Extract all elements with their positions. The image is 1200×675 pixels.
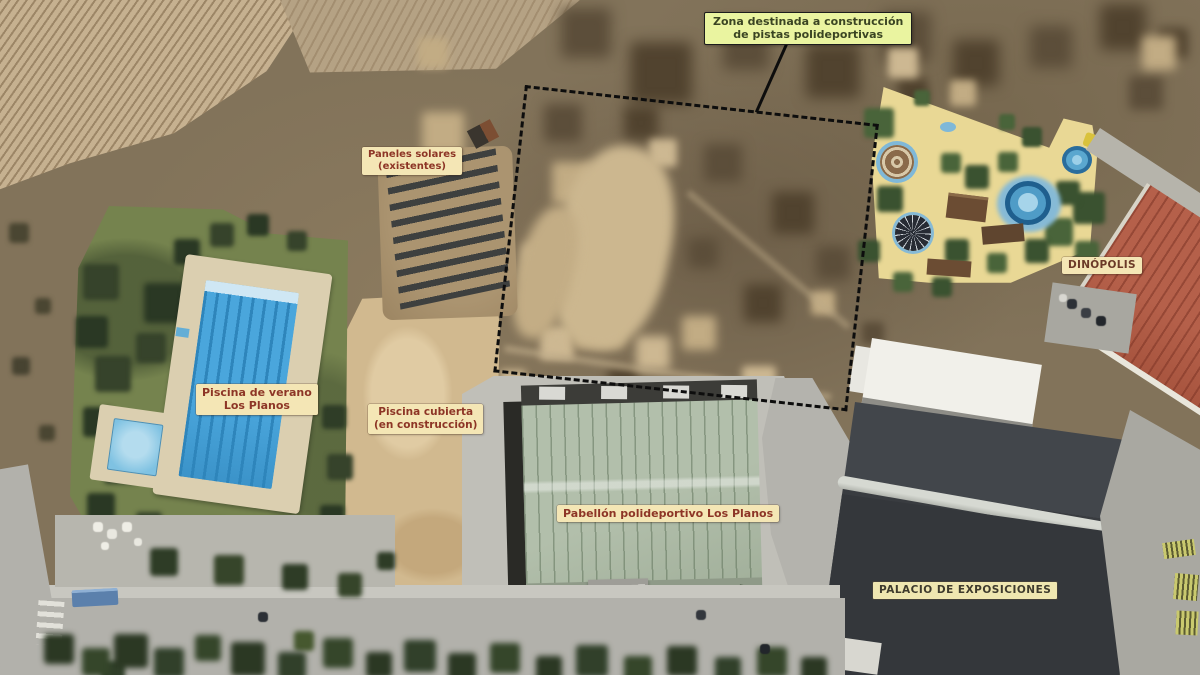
rooftop-unit: [539, 387, 565, 400]
small-blue-pool: [940, 122, 956, 132]
summer-pool-line2: Los Planos: [202, 399, 312, 412]
road-cars: [0, 0, 2, 2]
pool-south-pavement: [55, 515, 395, 587]
indoor-pool-line1: Piscina cubierta: [374, 406, 477, 419]
small-parking: [1044, 282, 1137, 353]
park-building: [926, 258, 971, 277]
pallet-stack: [1175, 610, 1198, 635]
callout-line1: Zona destinada a construcción: [713, 15, 903, 28]
solar-line2: (existentes): [368, 161, 456, 173]
crosswalk: [35, 600, 64, 646]
expo-palace-label: PALACIO DE EXPOSICIONES: [872, 581, 1058, 600]
pallet-stack: [1173, 573, 1199, 601]
aerial-map: Zona destinada a construcción de pistas …: [0, 0, 1200, 675]
zone-callout-label: Zona destinada a construcción de pistas …: [704, 12, 912, 45]
carousel-ride: [880, 145, 914, 179]
kids-pool: [107, 418, 164, 476]
summer-pool-label: Piscina de verano Los Planos: [196, 384, 318, 415]
blue-truck: [72, 588, 119, 607]
callout-line2: de pistas polideportivas: [713, 28, 903, 41]
park-building: [981, 223, 1024, 245]
rooftop-unit: [601, 386, 627, 399]
star-ride: [895, 215, 931, 251]
park-pool-2-center: [1072, 155, 1082, 165]
sports-hall-label: Pabellón polideportivo Los Planos: [557, 505, 779, 522]
solar-panels-label: Paneles solares (existentes): [362, 147, 462, 175]
solar-line1: Paneles solares: [368, 149, 456, 161]
indoor-pool-line2: (en construcción): [374, 419, 477, 432]
sidewalk: [0, 585, 840, 599]
park-pool-center: [1018, 193, 1038, 212]
green-roof: [521, 399, 762, 585]
construction-zone-outline: [493, 85, 879, 411]
summer-pool-line1: Piscina de verano: [202, 386, 312, 399]
splash-pool: [175, 327, 189, 338]
dinopolis-label: DINÓPOLIS: [1062, 257, 1142, 274]
callout-leader-line: [755, 44, 787, 113]
shed: [467, 119, 499, 149]
expo-palace-building: [813, 402, 1152, 675]
main-road: [0, 598, 845, 675]
park-building: [946, 193, 989, 223]
indoor-pool-label: Piscina cubierta (en construcción): [368, 404, 483, 434]
